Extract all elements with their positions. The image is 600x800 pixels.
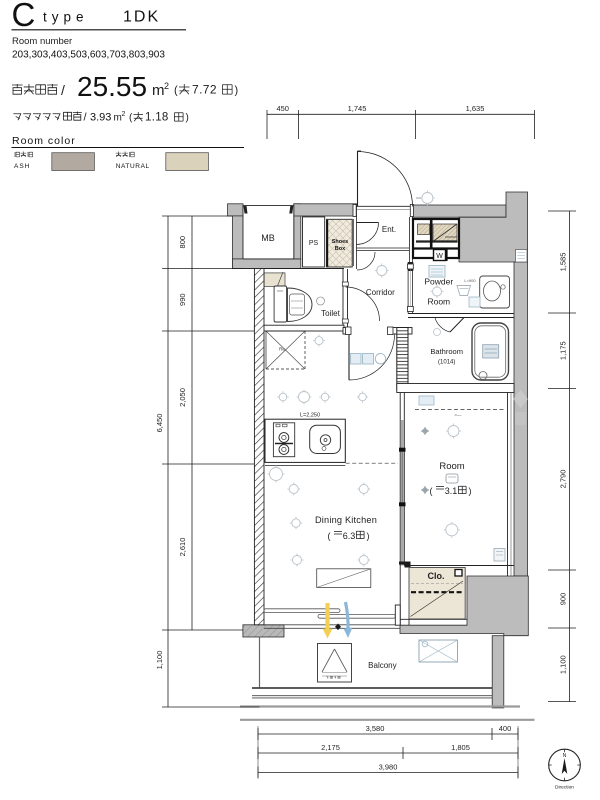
svg-text:1DK: 1DK: [123, 9, 160, 26]
svg-text:(: (: [328, 531, 331, 541]
svg-text:): ): [367, 531, 370, 541]
svg-text:3.93: 3.93: [90, 112, 111, 124]
svg-text:1,635: 1,635: [466, 104, 485, 113]
svg-text:L=2,250: L=2,250: [300, 413, 320, 419]
svg-text:Room: Room: [439, 461, 464, 472]
svg-text:6.3: 6.3: [343, 531, 356, 541]
svg-text:PS: PS: [309, 240, 319, 247]
svg-text:Box: Box: [335, 246, 346, 252]
svg-text:(1014): (1014): [438, 360, 455, 366]
svg-text:400: 400: [499, 724, 512, 733]
svg-text:3,980: 3,980: [379, 763, 398, 772]
svg-text:450: 450: [276, 104, 289, 113]
svg-text:N: N: [563, 753, 567, 759]
svg-text:2,175: 2,175: [321, 743, 340, 752]
svg-text:m: m: [152, 82, 165, 99]
svg-text:(: (: [174, 85, 178, 97]
svg-text:1,100: 1,100: [559, 655, 568, 674]
svg-text:≈—: ≈—: [455, 413, 462, 418]
svg-text:Toilet: Toilet: [321, 309, 340, 318]
svg-text:Dining Kitchen: Dining Kitchen: [315, 515, 377, 525]
svg-text:2,610: 2,610: [178, 538, 187, 557]
svg-text:Clo.: Clo.: [428, 571, 445, 581]
svg-text:Room color: Room color: [12, 135, 76, 147]
svg-text:7.72: 7.72: [192, 83, 217, 97]
svg-text:203,303,403,503,603,703,803,90: 203,303,403,503,603,703,803,903: [12, 50, 165, 61]
svg-text:990: 990: [178, 293, 187, 306]
svg-text:1.18: 1.18: [145, 112, 169, 124]
svg-text:MB: MB: [261, 233, 275, 243]
svg-text:Bathroom: Bathroom: [430, 347, 463, 356]
svg-text:1,100: 1,100: [155, 651, 164, 670]
svg-text:Powder: Powder: [424, 277, 453, 287]
svg-text:2: 2: [164, 81, 169, 91]
svg-text:type: type: [43, 10, 89, 25]
svg-text:/: /: [61, 82, 65, 98]
svg-text:2,050: 2,050: [178, 388, 187, 407]
svg-text:1,585: 1,585: [559, 253, 568, 272]
svg-text:2: 2: [122, 111, 126, 118]
svg-text:): ): [235, 85, 239, 97]
svg-text:Re: Re: [279, 347, 285, 352]
svg-text:900: 900: [559, 593, 568, 606]
svg-text:3.1: 3.1: [445, 486, 458, 496]
svg-text:Ent.: Ent.: [382, 225, 396, 234]
svg-text:2,790: 2,790: [559, 470, 568, 489]
svg-text:800: 800: [178, 236, 187, 249]
svg-text:NATURAL: NATURAL: [116, 163, 150, 170]
svg-text:Room: Room: [427, 297, 450, 307]
svg-text:W: W: [436, 253, 443, 260]
svg-text:Room number: Room number: [12, 36, 72, 47]
svg-text:Corridor: Corridor: [366, 288, 395, 297]
svg-text:1,805: 1,805: [451, 743, 470, 752]
svg-text:25.55: 25.55: [77, 71, 147, 102]
svg-text:Balcony: Balcony: [368, 661, 396, 670]
svg-text:): ): [186, 113, 189, 124]
svg-text:ASH: ASH: [14, 163, 30, 170]
svg-text:1,175: 1,175: [559, 341, 568, 360]
svg-text:): ): [469, 486, 472, 496]
svg-text:1,745: 1,745: [348, 104, 367, 113]
svg-text:Direction: Direction: [555, 785, 574, 791]
svg-text:6,450: 6,450: [155, 414, 164, 433]
svg-text:C: C: [12, 0, 36, 33]
svg-text:Shoes: Shoes: [332, 239, 349, 245]
svg-text:L=900: L=900: [464, 278, 476, 283]
svg-text:3,580: 3,580: [366, 724, 385, 733]
svg-text:(: (: [430, 486, 433, 496]
